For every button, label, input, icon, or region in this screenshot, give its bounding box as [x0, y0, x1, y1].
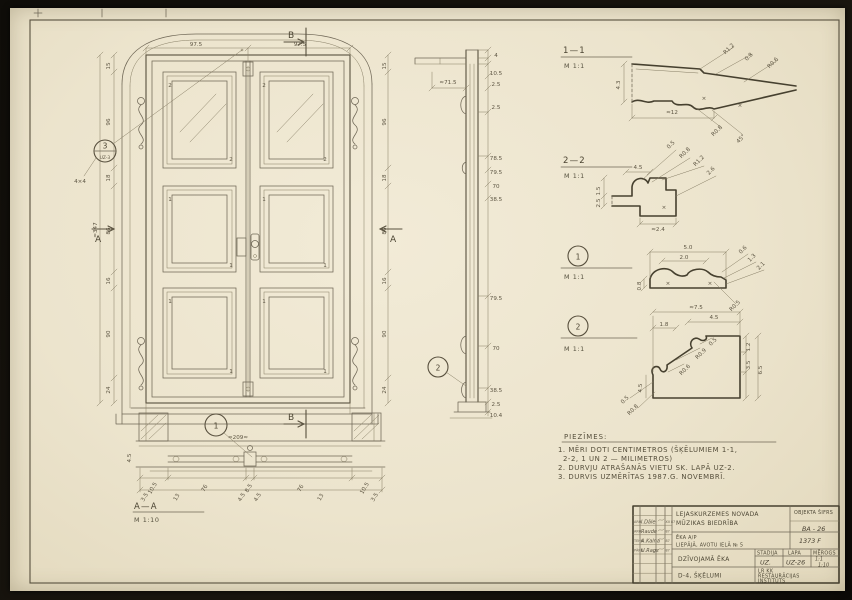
dim-label: 5.0: [684, 245, 693, 251]
sig-date-4: 87: [666, 549, 670, 553]
detail-moulding-scale: M 1:1: [564, 345, 585, 353]
detail-glazing-bead: 1 M 1:1: [561, 246, 764, 304]
object-name: DZĪVOJAMĀ ĒKA: [678, 556, 730, 563]
dim-label: R1.2: [723, 43, 736, 56]
signature-rows: ARH. I.Dāle XII 87 ARH. Raude 87 TEHN. A…: [633, 520, 675, 555]
dim-label: 1: [229, 263, 233, 269]
dim-label: 96: [106, 118, 112, 126]
hinge-bottom-left: [138, 338, 145, 391]
dim-label: 24: [382, 386, 388, 394]
dim-label: 13: [173, 493, 182, 503]
dim-label: R0.6: [767, 56, 781, 70]
dim-label: 70: [492, 184, 500, 190]
dim-label: ≈7.5: [689, 305, 703, 311]
dim-label: 4.5: [634, 165, 643, 171]
detail-bubble-2-number: 2: [576, 323, 581, 332]
dim-label: 4.5: [253, 492, 263, 503]
dim-label: 4.5: [127, 453, 133, 462]
section-letter-a-right: A: [390, 235, 397, 245]
dim-label: ×: [666, 281, 671, 287]
dim-label: 90: [382, 330, 388, 338]
bubble-3-sheet: UZ-3: [100, 155, 111, 161]
lapa-label: LAPA: [788, 551, 802, 557]
building-line1: ĒKA A/P: [676, 534, 697, 541]
dim-label: 4×4: [74, 179, 86, 185]
org-name-line1: LEJASKURZEMES NOVADA: [676, 512, 759, 518]
door-leaf-left: [163, 72, 236, 378]
dim-label: 18: [382, 174, 388, 182]
sig-date-1: XII 87: [666, 520, 676, 524]
dim-label: 2.5: [596, 198, 602, 207]
dim-label: 1: [323, 369, 327, 375]
plan-section-aa: 1 B A—A M 1:10: [133, 410, 385, 524]
dim-label: ≈2.4: [651, 227, 665, 233]
dim-label: 1: [323, 263, 327, 269]
dim-label: 96: [382, 118, 388, 126]
detail-2-2-scale: M 1:1: [564, 172, 585, 180]
dim-label: 2.1: [756, 261, 767, 272]
dim-label: 38.5: [490, 197, 503, 203]
dim-label: 86: [382, 227, 388, 235]
dim-label: 1: [168, 197, 172, 203]
dim-label: 97.5: [294, 42, 307, 48]
dim-label: 1: [262, 197, 266, 203]
dim-label: 76: [297, 484, 306, 494]
dim-label: 2: [229, 157, 233, 163]
section-letter-b-bottom: B: [288, 413, 295, 423]
dim-label: 0.5: [620, 395, 631, 406]
detail-section-2-2: 2—2 M 1:1: [561, 150, 716, 227]
dim-label: ×: [662, 205, 667, 211]
dim-label: ×: [702, 96, 707, 102]
dim-label: 2.0: [680, 255, 689, 261]
dim-label: 0.6: [738, 245, 749, 256]
dim-label: 1.2: [746, 343, 752, 352]
dim-label: 2.5: [492, 402, 501, 408]
detail-bubble-1-number: 1: [576, 253, 581, 262]
dim-label: 15: [106, 62, 112, 70]
sheet-frame: [30, 9, 839, 583]
note-line-3: 2. DURVJU ATRAŠANĀS VIETU SK. LAPĀ UZ-2.: [558, 463, 735, 472]
dim-label: 10.4: [490, 413, 503, 419]
dim-label: 10.5: [490, 71, 503, 77]
dim-label: 0.8: [637, 281, 643, 290]
dim-label: 0.8: [744, 52, 755, 63]
hinge-top-left: [138, 98, 145, 150]
dim-label: 2.5: [492, 105, 501, 111]
sig-date-2: 87: [666, 530, 670, 534]
dim-label: 16: [382, 277, 388, 285]
dim-label: 0.5: [666, 140, 677, 151]
dim-label: 2: [168, 83, 172, 89]
hinge-bottom-right: [352, 338, 359, 391]
dim-label: 2.6: [706, 166, 717, 177]
dim-label: R0.8: [627, 403, 641, 417]
dim-label: ≈209≈: [228, 435, 248, 441]
building-line2: LIEPĀJĀ, AVOTU IELĀ № 5: [676, 542, 743, 549]
dim-label: 3.5: [370, 492, 380, 503]
dim-label: 78.5: [490, 156, 503, 162]
dim-label: 6.5: [758, 365, 764, 374]
dim-label: 0.5: [708, 337, 719, 348]
bubble-3-number: 3: [103, 142, 108, 151]
bubble-1-number: 1: [214, 422, 219, 431]
dim-label: 1: [168, 299, 172, 305]
dim-label: 70: [492, 346, 500, 352]
dim-label: 18: [106, 174, 112, 182]
dim-label: 4.5: [710, 315, 719, 321]
dim-label: 2.5: [492, 82, 501, 88]
dim-label: 86: [106, 227, 112, 235]
dim-label: 15: [382, 62, 388, 70]
dim-label: 8.5: [244, 483, 254, 494]
dim-label: 4.5: [237, 492, 247, 503]
merogs-value-2: 1:10: [818, 563, 829, 569]
detail-bubble-2-strip: 2: [428, 357, 466, 386]
section-letter-b-top: B: [288, 31, 295, 41]
dim-label: 24: [106, 386, 112, 394]
dim-label: ≈347: [93, 222, 99, 238]
dim-label: 10.5: [147, 481, 159, 495]
institute-line3: INSTITŪTS: [758, 577, 786, 584]
dim-label: 79.5: [490, 296, 503, 302]
dim-label: 2: [323, 157, 327, 163]
dim-label: 4: [494, 53, 498, 59]
dim-label: 90: [106, 330, 112, 338]
dim-label: 3.5: [746, 360, 752, 369]
stadija-value: UZ.: [760, 559, 771, 567]
dim-label: 38.5: [490, 388, 503, 394]
dim-label: 1.8: [660, 322, 669, 328]
org-name-line2: MŪZIKAS BIEDRĪBA: [676, 520, 738, 527]
dim-label: ×: [738, 103, 743, 109]
bubble-2-number: 2: [436, 364, 441, 373]
dim-label: ×: [708, 281, 713, 287]
title-block: ARH. I.Dāle XII 87 ARH. Raude 87 TEHN. A…: [633, 506, 839, 584]
doc-number: 1373 F: [799, 537, 821, 545]
stadija-label: STADIJA: [757, 551, 778, 557]
dim-label: 4.5: [638, 383, 644, 392]
notes-title: PIEZĪMES:: [564, 432, 607, 441]
notes-block: PIEZĪMES: 1. MĒRI DOTI CENTIMETROS (ŠĶĒL…: [558, 432, 776, 481]
object-code-value: BA - 26: [802, 525, 825, 533]
door-elevation: A A B 3 UZ-3: [84, 28, 402, 424]
photographed-drawing-sheet: A A B 3 UZ-3: [0, 0, 852, 600]
vertical-section-strip: 2: [415, 47, 492, 418]
meeting-stile-plan: [244, 452, 256, 466]
dim-label: R0.5: [729, 299, 743, 313]
plan-section-scale: M 1:10: [134, 516, 160, 524]
dim-label: ≈71.5: [439, 80, 457, 86]
merogs-label: MĒROGS: [813, 550, 836, 557]
lapa-value: UZ-26: [786, 559, 805, 567]
door-leaf-right: [260, 72, 333, 378]
dim-label: 45°: [736, 134, 747, 145]
sheet-title: D-4, ŠĶĒLUMI: [678, 573, 722, 580]
plan-section-title: A—A: [134, 502, 158, 512]
note-line-1: 1. MĒRI DOTI CENTIMETROS (ŠĶĒLUMIEM 1-1,: [558, 445, 737, 455]
dim-label: 1.5: [596, 186, 602, 195]
sig-name-2: Raude: [641, 529, 657, 535]
sig-name-1: I.Dāle: [641, 520, 655, 526]
detail-1-1-title: 1—1: [563, 46, 586, 56]
sig-date-3: 87: [666, 539, 670, 543]
sig-name-3: A.Kalna: [640, 539, 660, 545]
dim-label: 1: [262, 299, 266, 305]
dim-label: 13: [317, 493, 326, 503]
dim-label: 1: [229, 369, 233, 375]
note-line-2: 2-2, 1 UN 2 — MILIMETROS): [563, 455, 673, 463]
dim-label: R0.8: [711, 124, 725, 138]
dim-label: 10.5: [359, 481, 371, 495]
dim-label: ≈12: [666, 110, 678, 116]
detail-section-1-1: 1—1 M 1:1: [561, 46, 796, 134]
elevation-dimension-chains: [97, 45, 391, 406]
sig-name-4: U.Rags: [641, 548, 659, 554]
dim-label: 2: [262, 83, 266, 89]
dim-label: 97.5: [190, 42, 203, 48]
detail-2-2-title: 2—2: [563, 156, 586, 166]
dim-label: 4.3: [616, 80, 622, 89]
dim-label: 79.5: [490, 170, 503, 176]
object-code-label: OBJEKTA ŠIFRS: [794, 509, 833, 516]
detail-bead-scale: M 1:1: [564, 273, 585, 281]
drawing-canvas: A A B 3 UZ-3: [0, 0, 852, 600]
detail-1-1-scale: M 1:1: [564, 62, 585, 70]
note-line-4: 3. DURVIS UZMĒRĪTAS 1987.G. NOVEMBRĪ.: [558, 472, 726, 481]
dim-label: 76: [201, 484, 210, 494]
hinge-top-right: [352, 98, 359, 150]
dim-label: 16: [106, 277, 112, 285]
